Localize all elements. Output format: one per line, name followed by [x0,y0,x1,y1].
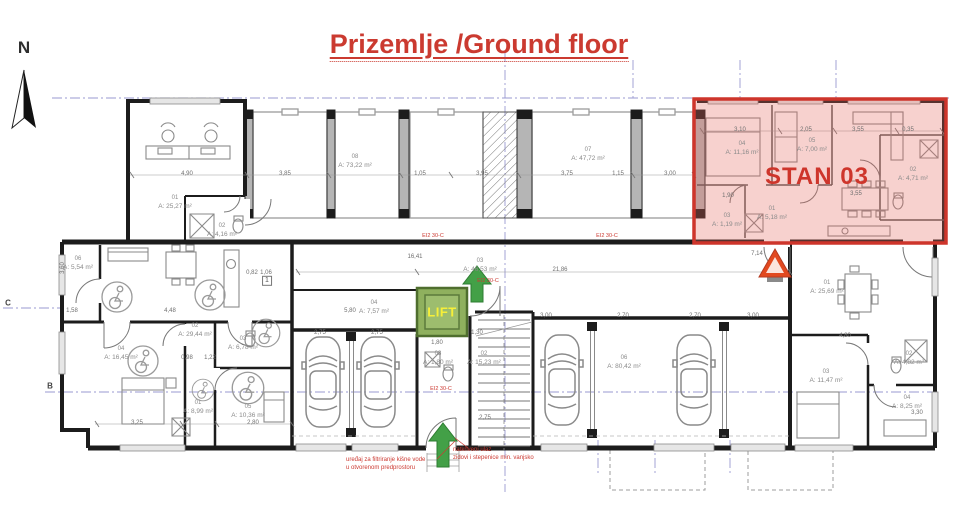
dimension-label: 0,35 [902,127,914,133]
dimension-label: 16,41 [407,254,422,260]
north-label: N [18,38,30,58]
room-label: 04A: 8,25 m² [892,395,922,411]
room-label: 08A: 73,22 m² [338,154,372,170]
room-label: 02A: 4,82 m² [894,351,924,367]
room-label: 04A: 7,57 m² [359,300,389,316]
dimension-label: 0,98 [181,355,193,361]
dimension-label: 3,85 [279,171,291,177]
dimension-label: 3,10 [734,127,746,133]
dimension-label: 2,75 [479,415,491,421]
dimension-label: 1,15 [612,171,624,177]
dimension-label: 1,80 [431,340,443,346]
room-label: 01A: 5,18 m² [757,206,787,222]
annotation-note: uređaj za filtriranje kišne vodeu otvore… [346,456,425,472]
room-label: 02A: 4,71 m² [898,167,928,183]
dimension-label: 3,00 [540,313,552,319]
room-label: 02A: 15,23 m² [467,351,501,367]
dimension-label: 2,75 [371,330,383,336]
room-label: 03A: 46,53 m² [463,258,497,274]
dimension-label: 1,05 [414,171,426,177]
stan03-label: STAN 03 [765,163,869,191]
car-icon [302,337,344,427]
wheelchair-icon [232,372,264,404]
car-icon [541,335,583,425]
room-label: 03A: 11,47 m² [809,369,842,385]
dimension-label: 2,80 [247,420,259,426]
room-label: 01A: 8,99 m² [183,400,213,416]
room-label: 02A: 29,44 m² [178,323,212,339]
room-label: 01A: 25,27 m² [158,195,192,211]
dimension-label: 2,70 [617,313,629,319]
dimension-label: 21,86 [552,267,567,273]
dimension-label: 3,60 [60,262,66,274]
dimension-label: 3,00 [747,313,759,319]
room-label: 05A: 10,36 m² [231,404,265,420]
floor-plan-page: Prizemlje /Ground floor N STAN 03 LIFT 0… [0,0,960,524]
fire-rating-label: EI2 30-C [596,233,618,239]
dimension-label: 7,14 [751,251,763,257]
dimension-label: 3,00 [664,171,676,177]
dimension-label: 1,30 [471,330,483,336]
dimension-label: 4,48 [164,308,176,314]
fire-rating-label: EI2 30-C [477,278,499,284]
dimension-label: 0,82 [246,270,258,276]
dimension-label: 2,05 [800,127,812,133]
wheelchair-icon [195,280,225,310]
staircase [476,315,532,450]
dimension-label: 3,30 [911,410,923,416]
page-title: Prizemlje /Ground floor [330,30,629,62]
dimension-label: 1,58 [66,308,78,314]
dimension-label: 1,90 [722,193,734,199]
car-icon [673,335,715,425]
dimension-label: 2,75 [314,330,326,336]
room-label: 07A: 47,72 m² [571,147,605,163]
structural-columns [245,110,705,218]
room-label: 01A: 25,69 m² [810,280,844,296]
entrance-triangle-icon [759,249,791,282]
parking-tag: 1 [262,276,272,286]
room-label: 04A: 16,45 m² [104,346,138,362]
dimension-label: 4,80 [839,333,851,339]
fire-rating-label: EI2 30-C [422,233,444,239]
car-icon [357,337,399,427]
dimension-label: 1,22 [204,355,216,361]
room-label: 04A: 11,16 m² [725,141,758,157]
axis-label: B [47,382,53,391]
dimension-label: 5,80 [344,308,356,314]
hatched-wall-section [483,112,517,218]
upper-parking-bays [253,109,693,218]
room-label: 03A: 6,78 m² [228,336,258,352]
dimension-label: 3,25 [131,420,143,426]
room-label: 03A: 1,80 m² [423,351,453,367]
dimension-label: 3,75 [561,171,573,177]
fire-rating-label: EI2 30-C [430,386,452,392]
annotation-note: natkriveni ulazzidovi i stepenice min. v… [453,446,534,462]
room-label: 06A: 80,42 m² [607,355,641,371]
dimension-label: 3,55 [850,191,862,197]
car-icons [302,335,715,427]
room-label: 06A: 5,54 m² [63,256,93,272]
room-label: 03A: 1,19 m² [712,213,742,229]
north-arrow-icon [12,70,36,128]
dimension-label: 3,95 [476,171,488,177]
dimension-label: 3,55 [852,127,864,133]
room-label: 02A: 4,16 m² [207,223,237,239]
axis-label: C [5,299,11,308]
exterior-dashed-outlines [610,450,833,490]
wheelchair-icon [102,282,132,312]
room-label: 05A: 7,00 m² [797,138,827,154]
dimension-label: 4,90 [181,171,193,177]
lift-label: LIFT [427,305,456,320]
dimension-label: 2,70 [689,313,701,319]
